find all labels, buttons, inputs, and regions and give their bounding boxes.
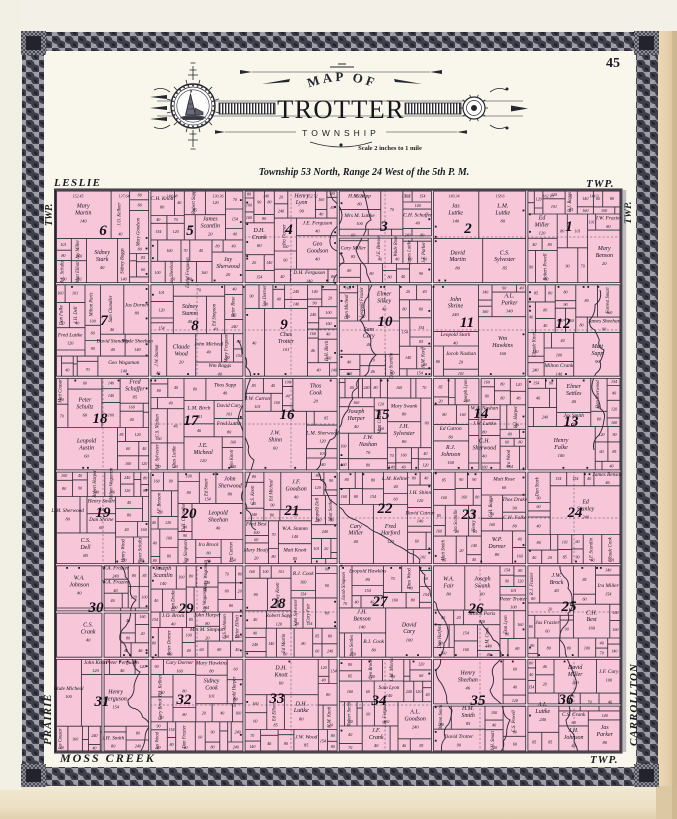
svg-text:80: 80	[189, 573, 193, 578]
svg-text:40: 40	[331, 191, 335, 196]
svg-text:Benson: Benson	[596, 253, 613, 259]
svg-text:120: 120	[536, 197, 542, 202]
svg-text:85: 85	[502, 265, 507, 270]
svg-text:85: 85	[274, 723, 278, 728]
svg-text:160: 160	[325, 356, 331, 361]
svg-text:Martin: Martin	[74, 210, 91, 216]
svg-text:80: 80	[60, 397, 64, 402]
svg-text:160: 160	[612, 627, 618, 632]
svg-text:60: 60	[424, 576, 428, 581]
svg-text:40: 40	[286, 394, 290, 399]
svg-text:70: 70	[225, 571, 229, 576]
svg-text:Sidney: Sidney	[94, 250, 110, 256]
svg-text:J.W. Luttke: J.W. Luttke	[473, 421, 497, 427]
svg-text:140: 140	[121, 369, 128, 374]
svg-text:17: 17	[184, 413, 200, 429]
svg-text:James: James	[203, 217, 218, 223]
svg-text:120: 120	[139, 664, 145, 669]
svg-text:20: 20	[208, 232, 213, 237]
svg-text:40: 40	[587, 476, 591, 481]
svg-text:154: 154	[504, 567, 510, 572]
svg-text:85: 85	[141, 255, 145, 260]
svg-text:160: 160	[461, 494, 467, 499]
svg-text:Cary Miller: Cary Miller	[341, 246, 367, 252]
svg-text:40: 40	[600, 641, 604, 646]
svg-text:101: 101	[404, 194, 410, 199]
svg-text:40: 40	[159, 715, 163, 720]
svg-text:101: 101	[158, 290, 164, 295]
svg-text:TOWNSHIP: TOWNSHIP	[302, 128, 380, 138]
svg-text:100: 100	[356, 221, 363, 226]
svg-text:148: 148	[263, 194, 269, 199]
svg-text:40: 40	[75, 321, 79, 326]
svg-text:240: 240	[293, 289, 299, 294]
svg-text:J.H.: J.H.	[357, 610, 367, 616]
svg-text:A.L.: A.L.	[409, 709, 420, 715]
svg-text:31: 31	[94, 694, 110, 710]
svg-text:Goodson: Goodson	[285, 486, 306, 492]
svg-text:160: 160	[396, 385, 402, 390]
svg-text:100: 100	[154, 270, 160, 275]
svg-text:80: 80	[423, 362, 427, 367]
svg-text:80: 80	[518, 440, 522, 445]
svg-text:20: 20	[406, 289, 410, 294]
svg-text:100: 100	[90, 318, 96, 323]
svg-text:20: 20	[548, 555, 552, 560]
svg-text:85: 85	[348, 674, 352, 679]
svg-text:90: 90	[257, 200, 261, 205]
svg-text:16: 16	[280, 407, 296, 423]
svg-text:Silkey: Silkey	[377, 298, 391, 304]
svg-text:60: 60	[599, 449, 603, 454]
svg-text:90: 90	[565, 627, 569, 632]
svg-text:Luttke: Luttke	[447, 210, 463, 216]
svg-text:35: 35	[470, 693, 487, 709]
svg-text:101: 101	[254, 404, 260, 409]
svg-text:85: 85	[532, 740, 536, 745]
svg-text:240: 240	[322, 529, 328, 534]
svg-text:80: 80	[234, 697, 238, 702]
svg-text:60: 60	[126, 446, 130, 451]
svg-text:Mrs M. Simpson: Mrs M. Simpson	[189, 627, 225, 633]
svg-text:40: 40	[326, 332, 330, 337]
svg-text:18: 18	[93, 411, 109, 427]
svg-text:Wade Rose: Wade Rose	[394, 236, 399, 257]
svg-text:Leopold Harper: Leopold Harper	[233, 676, 238, 708]
svg-text:J.W. Frazier: J.W. Frazier	[595, 216, 622, 222]
svg-text:154: 154	[232, 216, 238, 221]
svg-text:154: 154	[365, 588, 371, 593]
svg-text:80: 80	[543, 308, 547, 313]
svg-text:40: 40	[86, 637, 91, 642]
svg-text:80: 80	[505, 632, 509, 637]
svg-text:Mrs M. Luttke: Mrs M. Luttke	[343, 213, 375, 219]
svg-text:40: 40	[571, 399, 576, 404]
svg-text:Sidney Baggs: Sidney Baggs	[121, 248, 126, 274]
svg-text:80: 80	[157, 388, 161, 393]
svg-text:80: 80	[560, 228, 564, 233]
svg-text:160: 160	[139, 614, 145, 619]
svg-text:137.64: 137.64	[119, 194, 130, 199]
svg-text:90: 90	[329, 478, 333, 483]
svg-text:160: 160	[166, 536, 172, 541]
svg-text:85: 85	[473, 529, 477, 534]
svg-text:20: 20	[179, 360, 184, 365]
svg-text:20: 20	[279, 194, 283, 199]
svg-text:60: 60	[596, 196, 600, 201]
svg-text:80: 80	[490, 511, 494, 516]
svg-text:160: 160	[154, 478, 160, 483]
svg-text:80: 80	[446, 592, 451, 597]
svg-text:154: 154	[402, 330, 408, 335]
svg-text:90: 90	[156, 723, 160, 728]
svg-text:40: 40	[367, 342, 372, 347]
svg-text:80: 80	[585, 298, 589, 303]
svg-text:101: 101	[319, 451, 325, 456]
svg-text:80: 80	[440, 722, 444, 727]
svg-text:80: 80	[439, 641, 443, 646]
svg-text:Sylvester: Sylvester	[393, 431, 415, 437]
svg-text:80: 80	[262, 216, 266, 221]
svg-text:240: 240	[186, 277, 192, 282]
svg-text:4: 4	[284, 222, 293, 238]
svg-text:Henry: Henry	[459, 671, 475, 677]
svg-text:70: 70	[271, 532, 275, 537]
svg-text:40: 40	[348, 732, 352, 737]
svg-text:40: 40	[216, 526, 221, 531]
svg-text:120: 120	[369, 674, 375, 679]
svg-text:Cary Dorner: Cary Dorner	[166, 660, 194, 666]
svg-text:90: 90	[169, 478, 173, 483]
svg-text:240: 240	[231, 324, 237, 329]
svg-text:40: 40	[402, 464, 406, 469]
svg-text:90: 90	[612, 432, 616, 437]
svg-text:D.H.: D.H.	[252, 228, 264, 234]
svg-text:101: 101	[562, 540, 568, 545]
svg-text:John Knott: John Knott	[84, 660, 108, 666]
svg-text:70: 70	[422, 385, 426, 390]
svg-text:120: 120	[67, 341, 74, 346]
svg-text:120: 120	[321, 665, 327, 670]
svg-text:160: 160	[447, 460, 455, 465]
svg-text:Joseph: Joseph	[474, 577, 490, 583]
svg-text:140: 140	[452, 219, 460, 224]
svg-text:40: 40	[518, 537, 522, 542]
svg-text:120: 120	[598, 432, 604, 437]
svg-text:60: 60	[346, 314, 350, 319]
svg-text:Ira Miller: Ira Miller	[597, 583, 620, 589]
svg-text:40: 40	[187, 648, 191, 653]
svg-text:60: 60	[283, 258, 287, 263]
svg-text:Henry: Henry	[293, 193, 309, 199]
svg-text:60: 60	[141, 267, 145, 272]
svg-text:Fred Best: Fred Best	[245, 522, 267, 528]
svg-text:140: 140	[293, 302, 299, 307]
svg-text:David Catron: David Catron	[404, 510, 434, 516]
svg-text:20: 20	[324, 546, 328, 551]
svg-text:Dell: Dell	[79, 545, 91, 551]
svg-text:60: 60	[351, 232, 355, 237]
svg-text:130.36: 130.36	[213, 194, 224, 199]
svg-text:100: 100	[601, 208, 607, 213]
svg-text:80: 80	[331, 744, 335, 749]
svg-text:154: 154	[168, 727, 174, 732]
svg-text:Sidney: Sidney	[182, 304, 198, 310]
svg-text:L.M. Kellner: L.M. Kellner	[381, 476, 410, 482]
svg-text:40: 40	[374, 743, 379, 748]
svg-text:John: John	[450, 297, 462, 303]
svg-text:Austin: Austin	[78, 445, 94, 451]
svg-text:40: 40	[280, 274, 284, 279]
svg-text:40: 40	[183, 525, 187, 530]
svg-text:85: 85	[119, 432, 123, 437]
svg-text:160: 160	[201, 270, 207, 275]
svg-text:Crank: Crank	[252, 235, 267, 241]
svg-text:J.E. Benson: J.E. Benson	[377, 235, 382, 258]
svg-text:101: 101	[608, 558, 614, 563]
svg-text:11: 11	[460, 315, 474, 331]
svg-text:Harford: Harford	[380, 530, 400, 537]
svg-text:Cook: Cook	[309, 390, 322, 396]
svg-text:60: 60	[234, 667, 238, 672]
svg-text:9: 9	[280, 317, 288, 333]
svg-text:240: 240	[233, 745, 239, 750]
svg-text:Wade Micheal: Wade Micheal	[53, 686, 84, 692]
svg-text:90: 90	[183, 533, 187, 538]
svg-text:140: 140	[482, 289, 488, 294]
svg-text:80: 80	[217, 647, 221, 652]
svg-text:140: 140	[266, 260, 272, 265]
svg-text:90: 90	[78, 486, 82, 491]
svg-text:85: 85	[193, 208, 197, 213]
svg-text:40: 40	[78, 473, 82, 478]
svg-text:101: 101	[313, 546, 319, 551]
svg-text:160: 160	[235, 710, 241, 715]
svg-text:154: 154	[112, 705, 120, 710]
svg-text:100: 100	[510, 605, 517, 610]
svg-text:100: 100	[178, 574, 184, 579]
svg-text:20: 20	[252, 260, 256, 265]
svg-text:C.S.: C.S.	[83, 622, 93, 628]
svg-text:160: 160	[441, 495, 447, 500]
svg-text:40: 40	[508, 431, 512, 436]
svg-text:20: 20	[371, 358, 375, 363]
svg-text:Elmer: Elmer	[376, 292, 392, 298]
svg-text:140: 140	[415, 203, 421, 208]
svg-text:23: 23	[461, 507, 478, 523]
svg-text:158.6: 158.6	[496, 194, 505, 199]
svg-text:Hawkins: Hawkins	[491, 343, 513, 349]
svg-text:154: 154	[155, 229, 161, 234]
svg-text:40: 40	[543, 323, 547, 328]
svg-text:85: 85	[437, 513, 441, 518]
svg-text:Leopold Stark: Leopold Stark	[439, 332, 471, 338]
svg-text:140: 140	[93, 490, 99, 495]
svg-text:160: 160	[325, 321, 331, 326]
svg-text:40: 40	[126, 618, 130, 623]
svg-text:40: 40	[423, 289, 427, 294]
svg-text:160: 160	[125, 461, 131, 466]
svg-text:20: 20	[457, 615, 461, 620]
svg-text:Jas: Jas	[601, 725, 610, 731]
svg-text:40: 40	[409, 585, 413, 590]
svg-text:60: 60	[513, 742, 517, 747]
svg-text:140: 140	[306, 278, 313, 283]
svg-text:160: 160	[517, 622, 523, 627]
svg-text:80: 80	[495, 552, 500, 557]
svg-text:14: 14	[474, 406, 490, 422]
svg-text:20: 20	[295, 621, 299, 626]
svg-text:100: 100	[141, 595, 147, 600]
svg-text:160: 160	[347, 689, 353, 694]
svg-text:160: 160	[588, 625, 596, 630]
svg-text:100: 100	[262, 569, 268, 574]
svg-text:154: 154	[205, 496, 211, 501]
svg-text:85: 85	[534, 290, 538, 295]
svg-text:80: 80	[345, 477, 349, 482]
svg-text:90: 90	[575, 554, 579, 559]
svg-text:80: 80	[169, 742, 173, 747]
svg-text:85: 85	[252, 383, 256, 388]
svg-text:Johnson: Johnson	[564, 735, 584, 741]
svg-text:80: 80	[371, 477, 375, 482]
svg-text:Milton Paris: Milton Paris	[90, 292, 95, 317]
svg-text:D.H. Ferguson: D.H. Ferguson	[292, 270, 325, 276]
svg-text:80: 80	[442, 412, 446, 417]
svg-text:70: 70	[171, 277, 175, 282]
svg-text:20: 20	[328, 296, 332, 301]
svg-text:80: 80	[366, 462, 370, 467]
svg-text:21: 21	[284, 503, 300, 519]
svg-text:160: 160	[76, 254, 82, 259]
svg-text:Joseph: Joseph	[155, 566, 171, 572]
svg-text:70: 70	[233, 197, 237, 202]
svg-text:80: 80	[299, 716, 304, 721]
svg-text:90: 90	[529, 265, 533, 270]
svg-text:140: 140	[602, 713, 608, 718]
svg-text:240: 240	[204, 580, 210, 585]
svg-text:Luttke: Luttke	[534, 709, 550, 715]
svg-text:40: 40	[130, 417, 134, 422]
svg-text:154: 154	[236, 353, 242, 358]
svg-text:90: 90	[595, 359, 600, 364]
svg-text:154: 154	[158, 326, 164, 331]
svg-text:Ed Catron: Ed Catron	[439, 426, 462, 432]
svg-text:154: 154	[463, 630, 469, 635]
svg-text:140: 140	[108, 381, 114, 386]
svg-text:70: 70	[366, 450, 371, 455]
svg-text:120: 120	[422, 463, 428, 468]
svg-text:240: 240	[542, 415, 548, 420]
svg-text:160: 160	[611, 420, 617, 425]
svg-text:80: 80	[402, 306, 406, 311]
svg-text:140: 140	[319, 462, 325, 467]
svg-text:40: 40	[315, 257, 320, 262]
svg-text:80: 80	[168, 651, 172, 656]
svg-text:David: David	[401, 622, 416, 628]
svg-text:160: 160	[460, 412, 466, 417]
svg-text:160: 160	[155, 436, 161, 441]
svg-text:154: 154	[423, 592, 429, 597]
svg-text:40: 40	[252, 341, 256, 346]
svg-text:40: 40	[77, 591, 82, 596]
svg-text:80: 80	[91, 330, 95, 335]
svg-text:80: 80	[193, 386, 197, 391]
svg-text:240: 240	[251, 512, 257, 517]
svg-text:40: 40	[118, 231, 122, 236]
svg-text:240: 240	[452, 312, 460, 317]
svg-text:80: 80	[326, 692, 330, 697]
svg-text:David: David	[449, 250, 464, 256]
svg-text:80: 80	[257, 243, 262, 248]
svg-text:R.J. Cook: R.J. Cook	[292, 571, 314, 577]
svg-text:140: 140	[315, 518, 321, 523]
svg-text:Cary Fair: Cary Fair	[306, 603, 311, 622]
svg-text:80: 80	[284, 741, 288, 746]
svg-text:160: 160	[612, 610, 618, 615]
svg-text:154: 154	[611, 379, 617, 384]
svg-text:101: 101	[208, 694, 215, 699]
svg-text:Scantlin: Scantlin	[153, 573, 172, 579]
svg-text:J.F.: J.F.	[292, 480, 300, 486]
svg-text:80: 80	[174, 464, 178, 469]
svg-text:David Cary: David Cary	[216, 403, 243, 409]
svg-text:Sidney: Sidney	[204, 679, 220, 685]
svg-text:240: 240	[363, 385, 369, 390]
svg-text:40: 40	[174, 385, 178, 390]
svg-text:C.H.: C.H.	[586, 610, 597, 616]
svg-text:80: 80	[500, 395, 504, 400]
svg-text:James Sheehan: James Sheehan	[588, 318, 621, 324]
svg-text:60: 60	[419, 673, 423, 678]
svg-text:40: 40	[316, 368, 320, 373]
svg-text:40: 40	[382, 307, 387, 312]
svg-text:140: 140	[556, 371, 563, 376]
svg-text:80: 80	[159, 509, 163, 514]
svg-text:120: 120	[517, 579, 523, 584]
svg-text:80: 80	[143, 475, 147, 480]
svg-text:Thos: Thos	[310, 384, 322, 390]
svg-text:120: 120	[165, 520, 171, 525]
svg-text:140: 140	[386, 693, 393, 698]
svg-text:40: 40	[127, 500, 131, 505]
svg-text:Scantlin: Scantlin	[201, 223, 220, 229]
svg-text:80: 80	[515, 422, 519, 427]
svg-text:Johnson: Johnson	[441, 452, 461, 458]
svg-text:20: 20	[548, 607, 552, 612]
svg-text:100: 100	[65, 694, 72, 699]
svg-text:Milton Crank: Milton Crank	[544, 363, 574, 369]
svg-text:CARROLLTON: CARROLLTON	[628, 663, 640, 746]
svg-text:40: 40	[124, 648, 128, 653]
svg-text:40: 40	[532, 555, 536, 560]
svg-text:34: 34	[371, 693, 388, 709]
svg-text:80: 80	[436, 359, 440, 364]
svg-text:Thos Drake: Thos Drake	[502, 497, 528, 503]
svg-text:36: 36	[558, 692, 575, 708]
svg-text:2: 2	[463, 221, 472, 237]
svg-text:100: 100	[325, 310, 331, 315]
svg-text:90: 90	[536, 496, 540, 501]
svg-text:Fred: Fred	[128, 380, 140, 386]
svg-text:James Benson: James Benson	[592, 472, 623, 478]
svg-text:160: 160	[246, 215, 252, 220]
svg-text:90: 90	[502, 285, 506, 290]
svg-text:70: 70	[85, 367, 89, 372]
svg-text:60: 60	[366, 711, 370, 716]
svg-text:Sam Chandler: Sam Chandler	[109, 295, 114, 322]
svg-text:120: 120	[417, 498, 424, 503]
